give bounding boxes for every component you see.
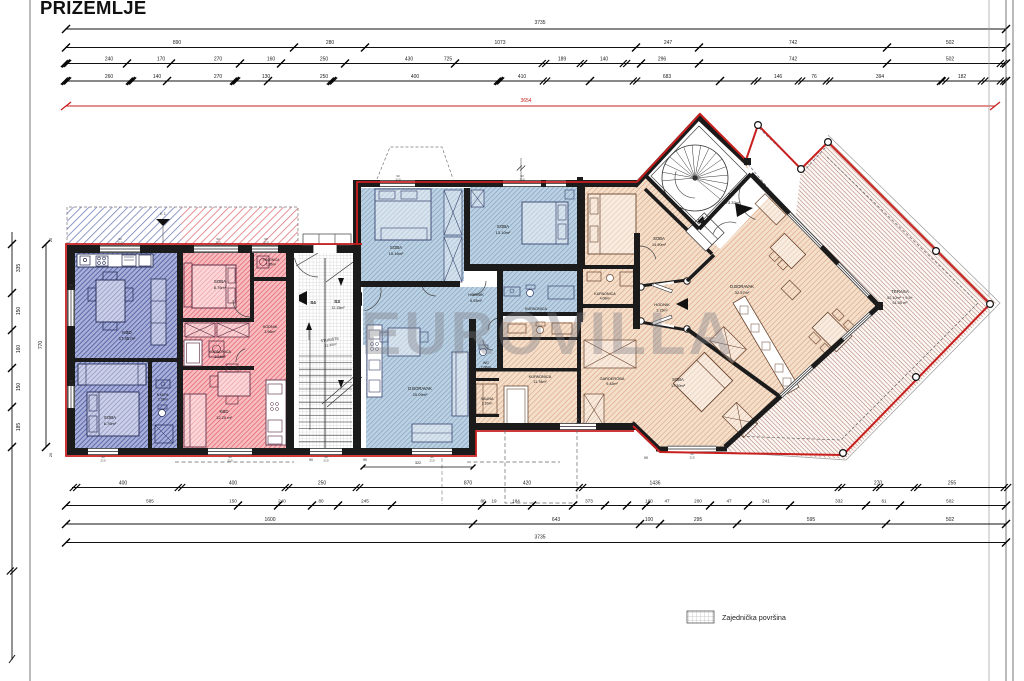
svg-text:146: 146 bbox=[774, 74, 783, 80]
svg-text:280: 280 bbox=[326, 40, 335, 46]
svg-text:3.96m²: 3.96m² bbox=[264, 330, 276, 334]
svg-text:1.93m²: 1.93m² bbox=[158, 398, 168, 402]
svg-text:140: 140 bbox=[153, 74, 162, 80]
svg-text:17.45 m²: 17.45 m² bbox=[119, 336, 136, 341]
svg-text:160: 160 bbox=[267, 57, 276, 63]
svg-text:HODNIK: HODNIK bbox=[263, 325, 278, 329]
svg-text:SOBA: SOBA bbox=[672, 377, 684, 382]
svg-text:1436: 1436 bbox=[649, 481, 660, 487]
svg-text:130: 130 bbox=[262, 74, 271, 80]
svg-text:9.42m²: 9.42m² bbox=[606, 382, 618, 386]
svg-text:D.BORAVAK: D.BORAVAK bbox=[408, 386, 432, 391]
svg-text:47: 47 bbox=[726, 499, 732, 504]
svg-text:742: 742 bbox=[789, 40, 798, 46]
svg-text:241: 241 bbox=[762, 499, 770, 504]
svg-text:400: 400 bbox=[229, 481, 238, 487]
svg-text:210: 210 bbox=[689, 455, 694, 459]
svg-text:160: 160 bbox=[16, 345, 22, 354]
svg-text:140: 140 bbox=[600, 57, 609, 63]
svg-text:150: 150 bbox=[229, 499, 237, 504]
svg-text:KUPAONICA: KUPAONICA bbox=[594, 292, 616, 296]
svg-text:52.10m² + 9.5+: 52.10m² + 9.5+ bbox=[887, 296, 914, 300]
svg-text:SAUNA: SAUNA bbox=[480, 397, 494, 401]
svg-text:210: 210 bbox=[263, 240, 268, 244]
svg-text:S3: S3 bbox=[334, 299, 340, 305]
svg-text:295: 295 bbox=[694, 517, 703, 523]
svg-text:3.24m²: 3.24m² bbox=[214, 355, 226, 359]
svg-text:100: 100 bbox=[645, 499, 653, 504]
svg-text:1.85m²: 1.85m² bbox=[266, 263, 276, 267]
svg-text:270: 270 bbox=[214, 74, 223, 80]
svg-text:20: 20 bbox=[49, 453, 53, 457]
svg-text:240: 240 bbox=[105, 57, 114, 63]
svg-text:K 1: K 1 bbox=[160, 212, 166, 216]
svg-text:200: 200 bbox=[694, 499, 702, 504]
svg-text:250: 250 bbox=[320, 74, 329, 80]
svg-text:189: 189 bbox=[558, 57, 567, 63]
svg-text:210: 210 bbox=[519, 177, 524, 181]
svg-text:870: 870 bbox=[464, 481, 473, 487]
svg-text:S4: S4 bbox=[310, 300, 316, 305]
svg-text:KUPAONICA: KUPAONICA bbox=[209, 350, 232, 354]
svg-text:KBD: KBD bbox=[219, 409, 228, 414]
svg-text:TERASA: TERASA bbox=[891, 289, 909, 294]
svg-text:240: 240 bbox=[278, 499, 286, 504]
svg-text:742: 742 bbox=[789, 57, 798, 63]
svg-text:322: 322 bbox=[415, 461, 421, 465]
svg-text:185: 185 bbox=[16, 423, 22, 432]
svg-text:90: 90 bbox=[644, 456, 648, 460]
svg-text:3735: 3735 bbox=[534, 535, 545, 541]
svg-text:210: 210 bbox=[323, 458, 328, 462]
svg-text:502: 502 bbox=[946, 57, 955, 63]
svg-text:SOBA: SOBA bbox=[653, 236, 665, 241]
svg-text:15.16m²: 15.16m² bbox=[389, 251, 404, 256]
svg-text:19: 19 bbox=[491, 499, 497, 504]
svg-text:14.90m²: 14.90m² bbox=[652, 243, 667, 247]
svg-text:90: 90 bbox=[309, 458, 313, 462]
svg-text:335: 335 bbox=[16, 264, 22, 273]
svg-text:PRAONICA: PRAONICA bbox=[263, 258, 281, 262]
svg-text:2.10m²: 2.10m² bbox=[482, 402, 493, 406]
svg-text:12.15m²: 12.15m² bbox=[331, 306, 345, 310]
svg-text:502: 502 bbox=[946, 499, 954, 504]
svg-text:KBD: KBD bbox=[122, 330, 132, 335]
svg-text:250: 250 bbox=[318, 481, 327, 487]
svg-text:683: 683 bbox=[663, 74, 672, 80]
svg-text:182: 182 bbox=[958, 74, 967, 80]
svg-text:51.05 m²: 51.05 m² bbox=[893, 301, 909, 305]
svg-text:3654: 3654 bbox=[520, 98, 531, 104]
svg-text:80: 80 bbox=[318, 499, 324, 504]
svg-text:502: 502 bbox=[946, 40, 955, 46]
svg-text:170: 170 bbox=[157, 57, 166, 63]
svg-text:420: 420 bbox=[523, 481, 532, 487]
svg-text:245: 245 bbox=[361, 499, 369, 504]
svg-text:100: 100 bbox=[645, 517, 654, 523]
svg-text:210: 210 bbox=[429, 458, 434, 462]
svg-text:1073: 1073 bbox=[494, 40, 505, 46]
svg-text:KUPAONICA: KUPAONICA bbox=[529, 374, 552, 379]
svg-text:1600: 1600 bbox=[264, 517, 275, 523]
svg-text:210: 210 bbox=[215, 240, 220, 244]
svg-text:SOBA: SOBA bbox=[214, 279, 226, 284]
svg-text:430: 430 bbox=[405, 57, 414, 63]
svg-text:EUROVILLA: EUROVILLA bbox=[361, 300, 735, 367]
svg-text:394: 394 bbox=[876, 74, 885, 80]
svg-text:890: 890 bbox=[173, 40, 182, 46]
svg-text:210: 210 bbox=[575, 420, 580, 424]
svg-text:400: 400 bbox=[119, 481, 128, 487]
svg-text:400: 400 bbox=[411, 74, 420, 80]
svg-text:410: 410 bbox=[518, 74, 527, 80]
svg-text:184: 184 bbox=[512, 499, 520, 504]
svg-text:210: 210 bbox=[117, 240, 122, 244]
svg-text:296: 296 bbox=[658, 57, 667, 63]
svg-text:150: 150 bbox=[16, 307, 22, 316]
svg-text:502: 502 bbox=[946, 517, 955, 523]
svg-text:260: 260 bbox=[105, 74, 114, 80]
svg-text:332: 332 bbox=[835, 499, 843, 504]
svg-text:GARDEROBA: GARDEROBA bbox=[600, 376, 625, 381]
svg-text:80: 80 bbox=[480, 499, 486, 504]
svg-text:3735: 3735 bbox=[534, 20, 545, 26]
svg-text:Zajednička površina: Zajednička površina bbox=[722, 613, 786, 622]
svg-text:643: 643 bbox=[552, 517, 561, 523]
svg-text:255: 255 bbox=[948, 481, 957, 487]
svg-text:61: 61 bbox=[881, 499, 887, 504]
svg-text:150: 150 bbox=[16, 383, 22, 392]
svg-text:12.20 m²: 12.20 m² bbox=[216, 415, 232, 420]
svg-text:13.10m²: 13.10m² bbox=[496, 230, 511, 235]
svg-text:247: 247 bbox=[664, 40, 673, 46]
svg-text:210: 210 bbox=[68, 382, 73, 386]
svg-text:32.57m²: 32.57m² bbox=[735, 290, 750, 295]
svg-text:SOBA: SOBA bbox=[390, 245, 402, 250]
svg-text:11.78m²: 11.78m² bbox=[533, 380, 547, 384]
svg-text:8.76m²: 8.76m² bbox=[214, 285, 227, 290]
svg-text:210: 210 bbox=[100, 458, 105, 462]
svg-text:20.09m²: 20.09m² bbox=[413, 392, 428, 397]
svg-text:210: 210 bbox=[68, 286, 73, 290]
svg-text:47: 47 bbox=[664, 499, 670, 504]
svg-text:17.30m²: 17.30m² bbox=[671, 384, 686, 388]
svg-text:20: 20 bbox=[49, 238, 53, 242]
svg-text:SOBA: SOBA bbox=[104, 415, 116, 420]
svg-text:D.BORAVAK: D.BORAVAK bbox=[730, 284, 754, 289]
svg-text:210: 210 bbox=[395, 177, 400, 181]
svg-text:373: 373 bbox=[585, 499, 593, 504]
svg-text:585: 585 bbox=[146, 499, 154, 504]
svg-text:770: 770 bbox=[38, 341, 44, 350]
svg-text:270: 270 bbox=[214, 57, 223, 63]
svg-text:90: 90 bbox=[363, 458, 367, 462]
svg-text:PRIZEMLJE: PRIZEMLJE bbox=[40, 0, 147, 18]
svg-text:SOBA: SOBA bbox=[497, 224, 509, 229]
svg-text:6.76m²: 6.76m² bbox=[104, 421, 117, 426]
svg-text:250: 250 bbox=[320, 57, 329, 63]
svg-text:725: 725 bbox=[444, 57, 453, 63]
svg-text:N.KUPA.: N.KUPA. bbox=[157, 393, 170, 397]
svg-text:76: 76 bbox=[811, 74, 817, 80]
svg-text:595: 595 bbox=[807, 517, 816, 523]
svg-text:270: 270 bbox=[874, 481, 883, 487]
